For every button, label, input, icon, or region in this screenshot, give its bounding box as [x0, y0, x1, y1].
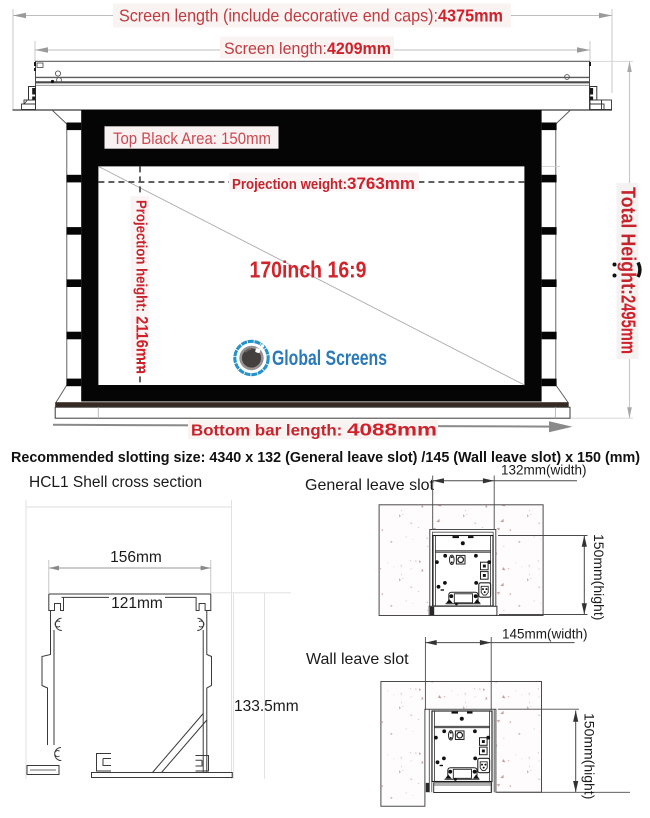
svg-text:145mm(width): 145mm(width) — [502, 627, 588, 642]
svg-text:HCL1 Shell cross section: HCL1 Shell cross section — [29, 474, 202, 491]
svg-text:156mm: 156mm — [110, 549, 162, 566]
svg-text:Bottom bar length: 4088mm: Bottom bar length: 4088mm — [191, 420, 437, 440]
svg-text:Wall leave slot: Wall leave slot — [306, 651, 409, 668]
svg-text:150mm(hight): 150mm(hight) — [591, 534, 607, 620]
svg-text:133.5mm: 133.5mm — [234, 698, 299, 715]
svg-text:Global Screens: Global Screens — [272, 347, 387, 370]
svg-text:Projection height: 2116mm: Projection height: 2116mm — [133, 200, 151, 374]
svg-text:132mm(width): 132mm(width) — [501, 463, 587, 478]
svg-text:Projection weight:3763mm: Projection weight:3763mm — [232, 175, 415, 193]
svg-text:General leave slot: General leave slot — [305, 477, 435, 494]
svg-text:Total Height:2495mm: Total Height:2495mm — [617, 187, 639, 354]
svg-text:Screen length (include decorat: Screen length (include decorative end ca… — [119, 6, 503, 26]
svg-text:150mm(hight): 150mm(hight) — [582, 713, 598, 799]
svg-text:Screen length:4209mm: Screen length:4209mm — [224, 39, 391, 58]
svg-text:170inch 16:9: 170inch 16:9 — [250, 257, 367, 283]
svg-text:Top Black Area: 150mm: Top Black Area: 150mm — [113, 129, 271, 148]
svg-text:121mm: 121mm — [111, 595, 163, 612]
